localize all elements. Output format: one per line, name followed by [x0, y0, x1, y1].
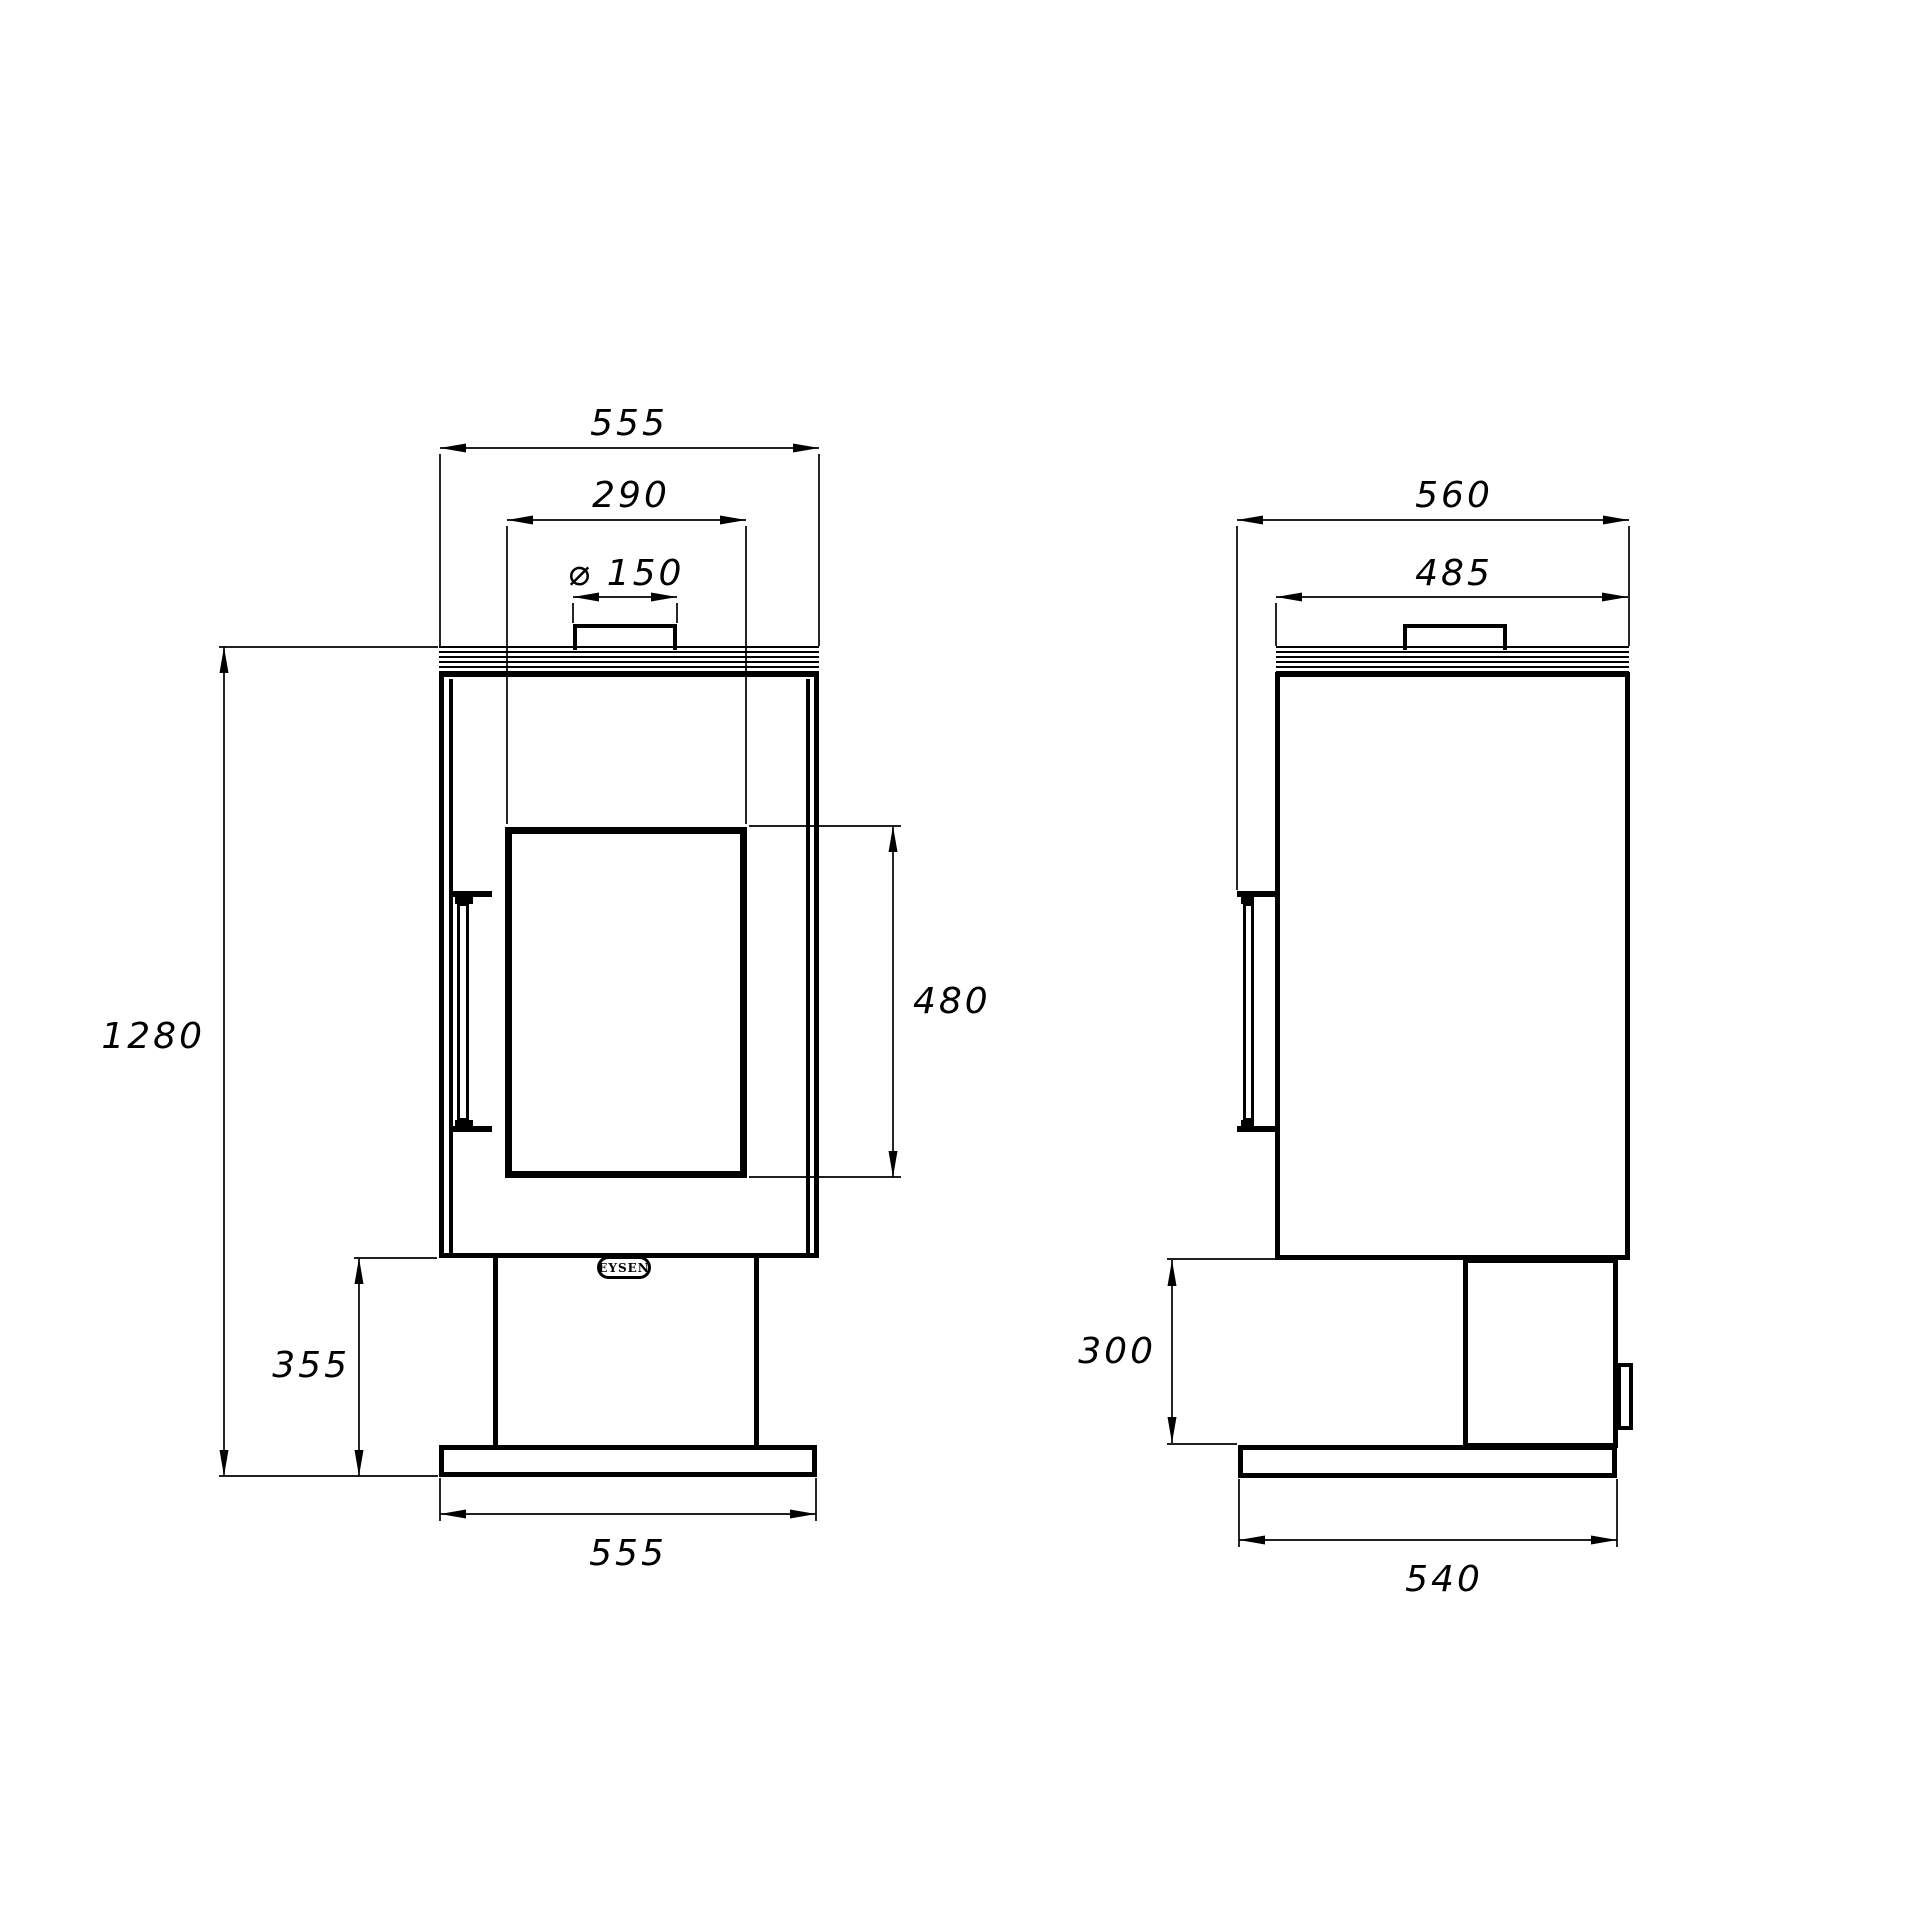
dim-label-front-glass-height: 480: [913, 984, 991, 1020]
drawer-handle-side: [1617, 1363, 1633, 1430]
brand-logo: EYSEN: [597, 1256, 651, 1279]
dim-label-side-pedestal-height: 300: [1078, 1334, 1156, 1370]
door-handle-flange-bottom-front: [452, 1126, 492, 1132]
dim-label-front-pedestal-height: 355: [272, 1348, 350, 1384]
dim-label-side-top-depth: 485: [1415, 556, 1493, 592]
technical-drawing-canvas: EYSEN: [0, 0, 1908, 1908]
stove-body-side: [1275, 672, 1630, 1260]
dim-label-front-height: 1280: [101, 1019, 205, 1055]
dim-label-front-glass-width: 290: [592, 478, 670, 514]
dim-label-front-top-width: 555: [590, 406, 668, 442]
top-plate-side: [1276, 646, 1629, 673]
base-plate-side: [1238, 1445, 1617, 1478]
dim-label-front-flue-diameter: ⌀ 150: [568, 556, 685, 592]
base-plate-front: [439, 1445, 817, 1477]
door-handle-bar-side: [1243, 903, 1254, 1121]
rear-compartment-side: [1463, 1258, 1618, 1448]
pedestal-front: [493, 1258, 759, 1445]
dim-label-front-base-width: 555: [589, 1536, 667, 1572]
door-handle-flange-bottom-side: [1237, 1126, 1275, 1132]
door-edge-right: [806, 679, 810, 1253]
dim-label-side-depth: 560: [1415, 478, 1493, 514]
door-handle-bar-front: [457, 903, 469, 1121]
top-plate-front: [439, 646, 819, 673]
brand-logo-text: EYSEN: [598, 1261, 650, 1275]
dim-label-side-base-depth: 540: [1405, 1562, 1483, 1598]
door-glass: [505, 827, 747, 1178]
door-edge-left: [449, 679, 453, 1253]
